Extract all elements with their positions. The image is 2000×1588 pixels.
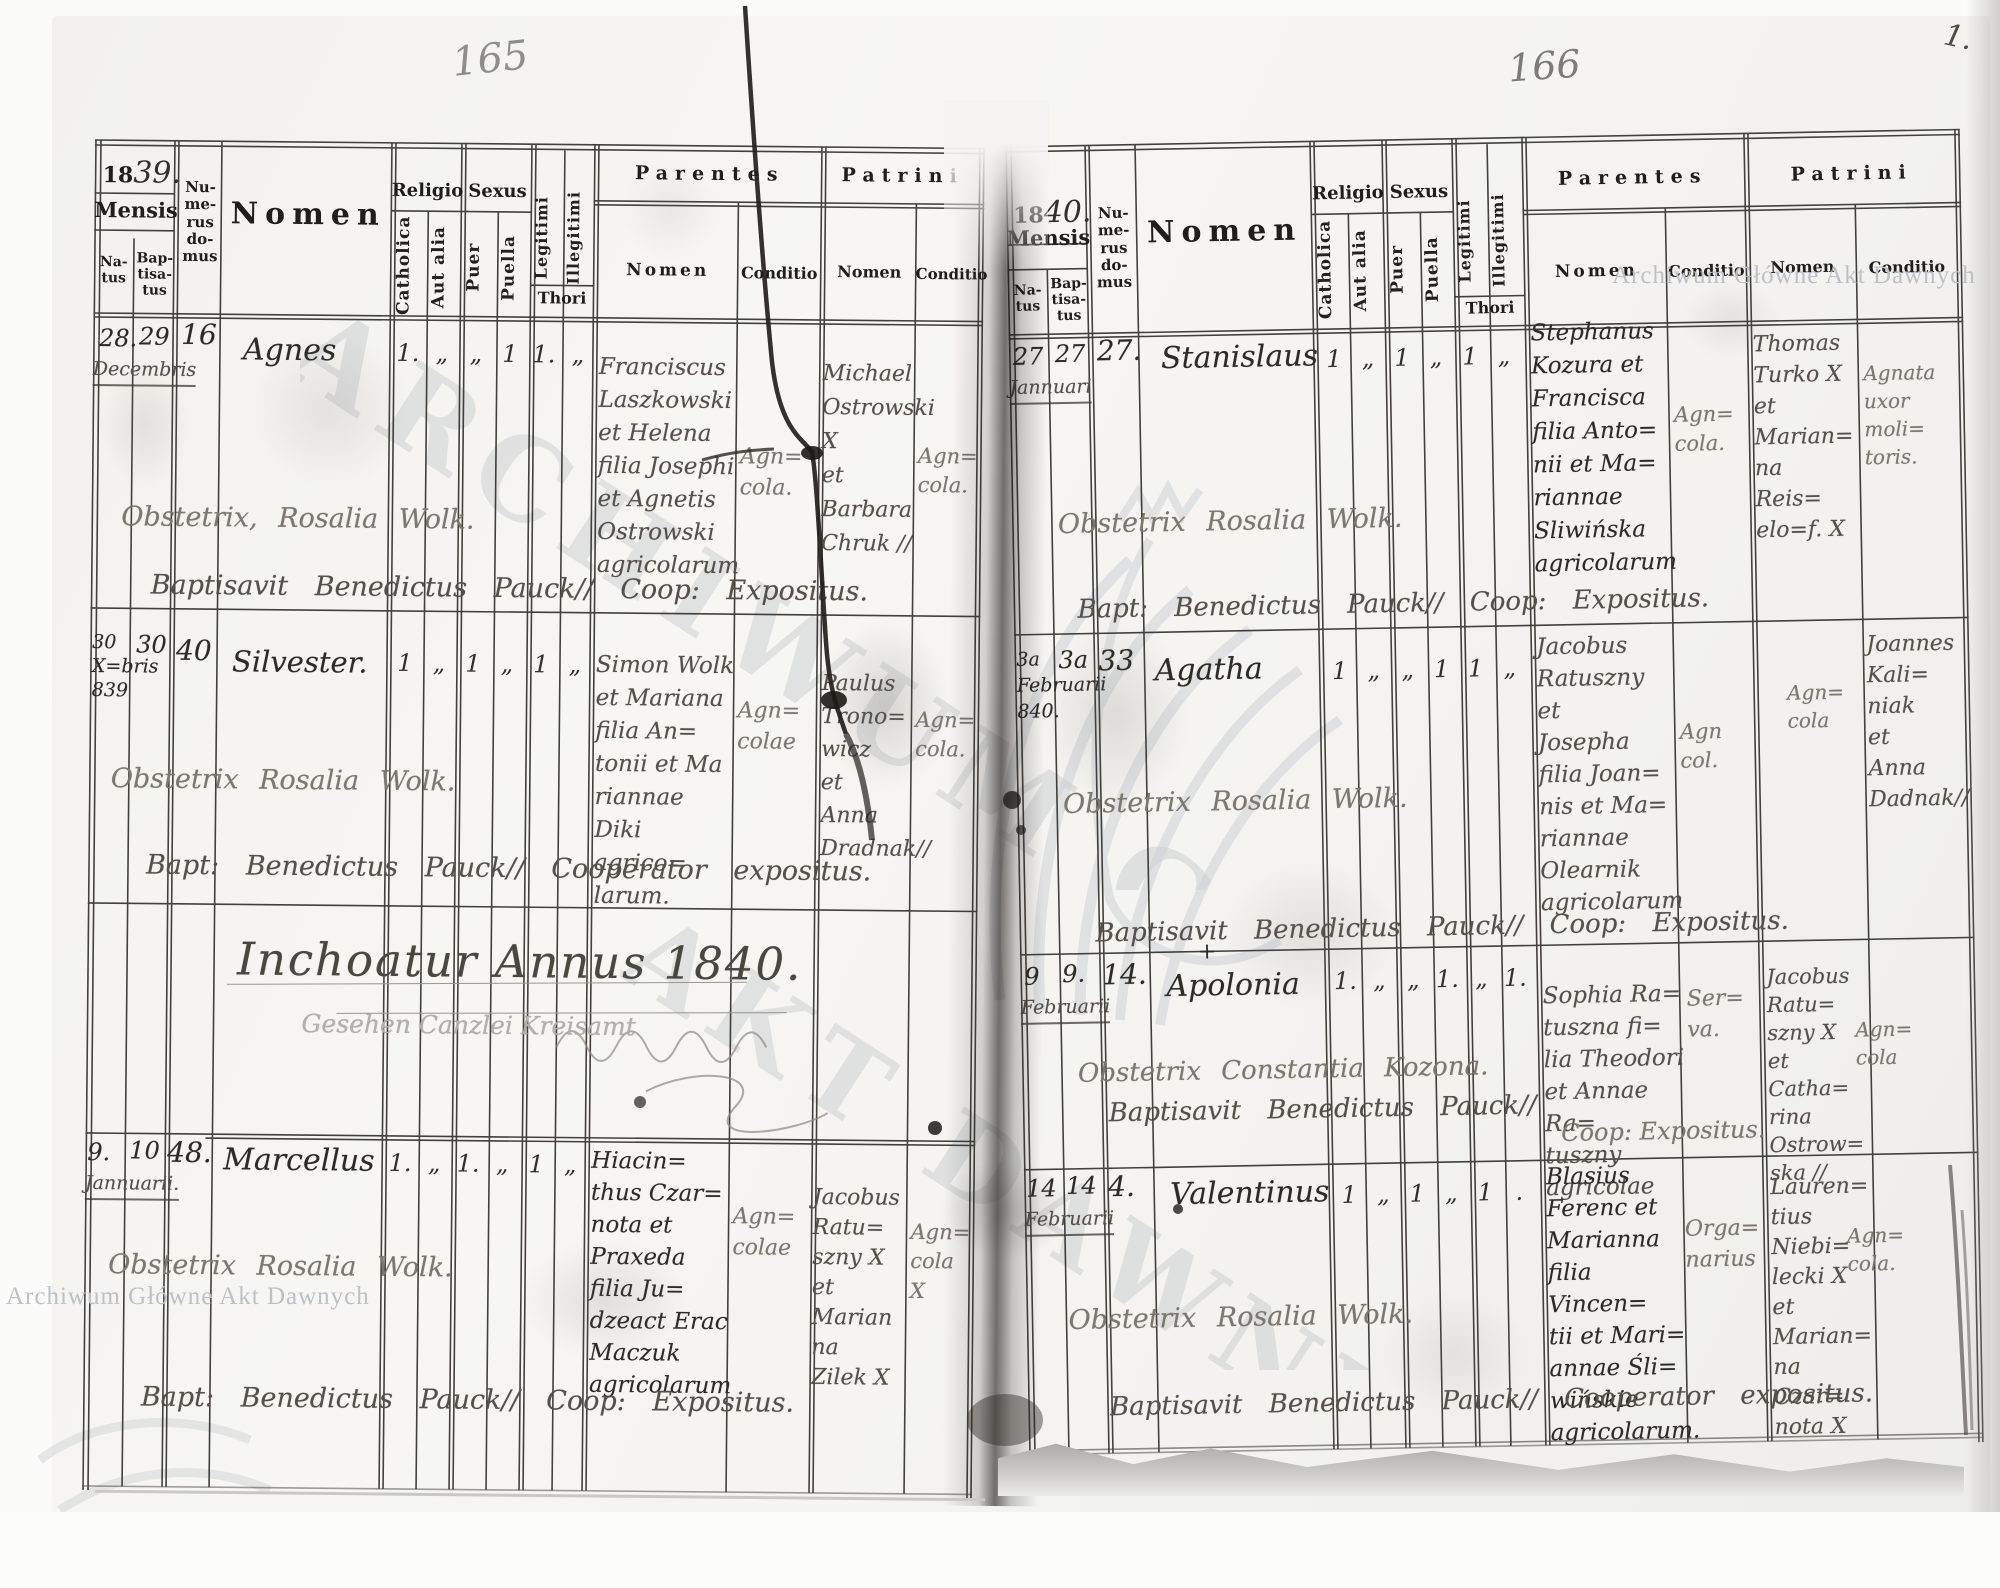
- col-natus: Na- tus: [94, 254, 134, 287]
- folio-number-right: 166: [1507, 42, 1582, 91]
- col-religio: Religio: [1311, 183, 1385, 205]
- col-parentes-nomen: Nomen: [598, 261, 738, 282]
- death-cross: +: [1198, 937, 1217, 968]
- baptism-date: 10: [129, 1134, 160, 1168]
- house-number: 27.: [1096, 331, 1141, 371]
- baptizer-note: Baptisavit Benedictus Pauck// Coop: Expo…: [151, 567, 869, 612]
- parents-names: Stephanus Kozura et Francisca filia Anto…: [1530, 315, 1675, 582]
- binding-fold-fade: [944, 100, 1048, 270]
- child-name: Marcellus: [223, 1139, 375, 1182]
- col-baptisatus: Bap- tisa- tus: [1047, 275, 1090, 324]
- child-name: Valentinus: [1170, 1171, 1330, 1216]
- document-scan: { "wm": { "small": "Archiwum Główne Akt …: [0, 0, 2000, 1588]
- midwife-note: Obstetrix Rosalia Wolk.: [111, 760, 456, 801]
- paper-stain: [250, 330, 410, 490]
- parents-condition: Agn= colae: [732, 1202, 795, 1264]
- godparents-names: Michael Ostrowski X et Barbara Chruk //: [821, 357, 919, 562]
- col-nomen: Nomen: [224, 197, 392, 233]
- paper-stain: [820, 620, 950, 790]
- paper-stain: [620, 160, 720, 260]
- godparents-condition: Agn= cola.: [1847, 1221, 1905, 1278]
- col-patrini: Patrini: [1746, 162, 1956, 188]
- col-sexus: Sexus: [461, 182, 533, 203]
- col-puer: Puer: [1386, 221, 1420, 318]
- col-parentes: Parentes: [1525, 166, 1741, 192]
- scan-right-margin: [1966, 0, 2000, 1588]
- godparents-names: Jacobus Ratu= szny X et Catha= rina Ostr…: [1766, 961, 1868, 1187]
- pencil-note: Gesehen Canzlei Kreisamt: [301, 1006, 636, 1044]
- godparents-names: Thomas Turko X et Marian= na Reis= elo=f…: [1753, 327, 1859, 546]
- natus-date: 9.: [87, 1136, 110, 1170]
- child-name: Stanislaus: [1161, 335, 1319, 380]
- col-patrini-nomen: Nomen: [823, 263, 916, 282]
- baptism-date: 9.: [1062, 958, 1086, 992]
- godparents-condition: Agnata uxor moli= toris.: [1863, 358, 1937, 471]
- tally-marks: 1.„„11.„: [391, 339, 595, 369]
- col-religio: Religio: [391, 181, 463, 202]
- tally-marks: 1.„1.„1„: [383, 1149, 587, 1179]
- parents-condition: Agn= cola.: [740, 442, 803, 504]
- col-aut-alia: Aut alia: [428, 219, 461, 315]
- archive-watermark-text: Archiwum Główne Akt Dawnych: [1612, 262, 1976, 290]
- midwife-note: Obstetrix Rosalia Wolk.: [108, 1246, 453, 1287]
- parents-condition: Agn col.: [1680, 717, 1723, 777]
- col-legitimi: Legitimi: [1453, 164, 1488, 317]
- parents-condition: Ser= va.: [1687, 984, 1745, 1047]
- col-parentes-conditio: Conditio: [738, 264, 821, 283]
- house-number: 4.: [1108, 1167, 1135, 1207]
- midwife-note: Obstetrix Rosalia Wolk.: [1068, 1296, 1413, 1340]
- parents-condition: Agn= cola.: [1674, 400, 1735, 460]
- house-number: 14.: [1102, 955, 1147, 995]
- baptism-date: 14: [1066, 1169, 1097, 1203]
- parents-names: Franciscus Laszkowski et Helena filia Jo…: [597, 351, 737, 583]
- baptism-date: 29: [139, 320, 170, 354]
- tally-marks: 1„„11„: [1322, 654, 1526, 686]
- coop-note: Coop: Expositus.: [1561, 1113, 1766, 1150]
- baptism-date: 27: [1055, 338, 1086, 372]
- godparents-condition: Agn= cola: [1855, 1015, 1913, 1072]
- godparents-names: Jacobus Ratu= szny X et Marian na Zilek …: [811, 1183, 909, 1394]
- paper-stain: [1040, 620, 1190, 810]
- col-numerus-domus: Nu- me- rus do- mus: [1090, 205, 1138, 292]
- scan-bottom-margin: [0, 1512, 2000, 1588]
- baptizer-note: Bapt: Benedictus Pauck// Cooperator expo…: [146, 847, 872, 892]
- paper-stain: [1220, 860, 1400, 1010]
- house-number: 40: [176, 631, 212, 671]
- col-mensis: Mensis: [94, 198, 176, 223]
- paper-stain: [1680, 280, 1780, 360]
- col-puella: Puella: [498, 220, 531, 316]
- col-legitimi: Legitimi: [531, 166, 564, 308]
- col-catholica: Catholica: [393, 219, 426, 315]
- col-sexus: Sexus: [1383, 182, 1455, 204]
- col-illegitimi: Illegitimi: [1487, 164, 1522, 317]
- year-printed: 18: [103, 162, 134, 188]
- col-numerus-domus: Nu- me- rus do- mus: [178, 179, 223, 266]
- col-baptisatus: Bap- tisa- tus: [133, 250, 175, 299]
- col-puer: Puer: [463, 220, 496, 316]
- col-thori: Thori: [530, 289, 593, 308]
- midwife-note: Obstetrix Rosalia Wolk.: [1058, 500, 1403, 544]
- col-catholica: Catholica: [1314, 223, 1348, 320]
- tally-marks: 1„1„1.: [1332, 1177, 1536, 1209]
- col-aut-alia: Aut alia: [1349, 222, 1383, 319]
- col-thori: Thori: [1455, 298, 1525, 318]
- month-label: Jannuarii.: [85, 1170, 180, 1200]
- col-illegitimi: Illegitimi: [563, 167, 596, 309]
- paper-stain: [520, 1240, 690, 1360]
- col-puella: Puella: [1421, 221, 1455, 318]
- archive-watermark-text: Archiwum Główne Akt Dawnych: [6, 1283, 370, 1311]
- binding-fold: [942, 104, 1050, 1507]
- godparents-names: Joannes Kali= niak et Anna Dadnak//: [1866, 627, 1971, 815]
- parents-condition: Orga= narius: [1685, 1213, 1760, 1276]
- year-handwritten: 39.: [133, 155, 181, 190]
- folio-number-left: 165: [450, 32, 531, 86]
- natus-date: 28.: [99, 322, 137, 356]
- col-nomen: Nomen: [1138, 213, 1311, 251]
- tally-marks: 1„1„1„: [388, 649, 592, 679]
- paper-stain: [100, 360, 190, 490]
- child-name: Silvester.: [232, 641, 368, 683]
- baptizer-note: Bapt: Benedictus Pauck// Coop: Expositus…: [141, 1378, 794, 1422]
- paper-stain: [1380, 1290, 1530, 1420]
- midwife-note: Obstetrix, Rosalia Wolk.: [121, 498, 474, 539]
- midwife-note: Obstetrix Constantia Kozona.: [1078, 1048, 1489, 1092]
- year-label: 1839.: [102, 156, 178, 191]
- tally-marks: 1„1„1„: [1317, 342, 1521, 374]
- parents-condition: Agn= colae: [737, 696, 800, 758]
- house-number: 48.: [167, 1133, 212, 1173]
- godparents-condition: Agn= cola: [1787, 678, 1845, 735]
- parents-names: Jacobus Ratuszny et Josepha filia Joan= …: [1536, 629, 1681, 920]
- inchoatur-annus-title: Inchoatur Annus 1840.: [237, 927, 803, 995]
- baptism-date: 30: [136, 628, 167, 662]
- house-number: 16: [181, 315, 217, 355]
